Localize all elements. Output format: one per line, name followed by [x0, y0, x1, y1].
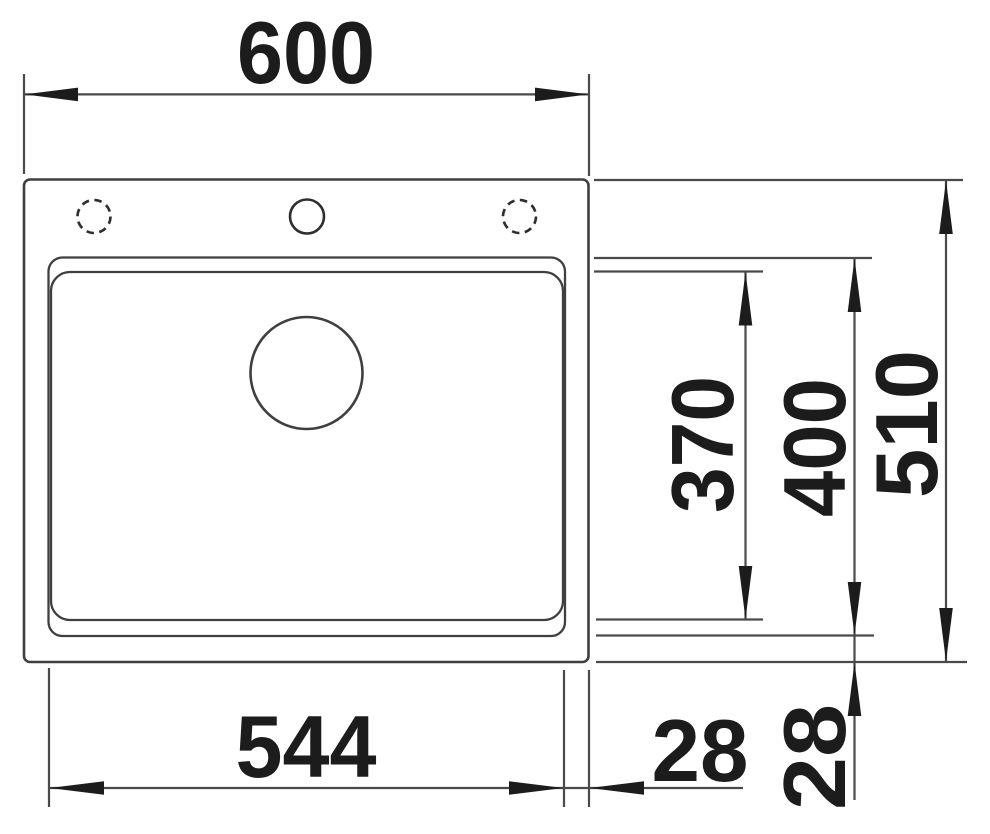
svg-text:400: 400 — [765, 378, 864, 517]
svg-text:28: 28 — [765, 704, 864, 810]
svg-text:510: 510 — [857, 350, 956, 498]
svg-text:370: 370 — [653, 376, 752, 513]
svg-text:600: 600 — [237, 3, 375, 102]
svg-text:544: 544 — [236, 697, 377, 796]
svg-text:28: 28 — [652, 701, 749, 800]
